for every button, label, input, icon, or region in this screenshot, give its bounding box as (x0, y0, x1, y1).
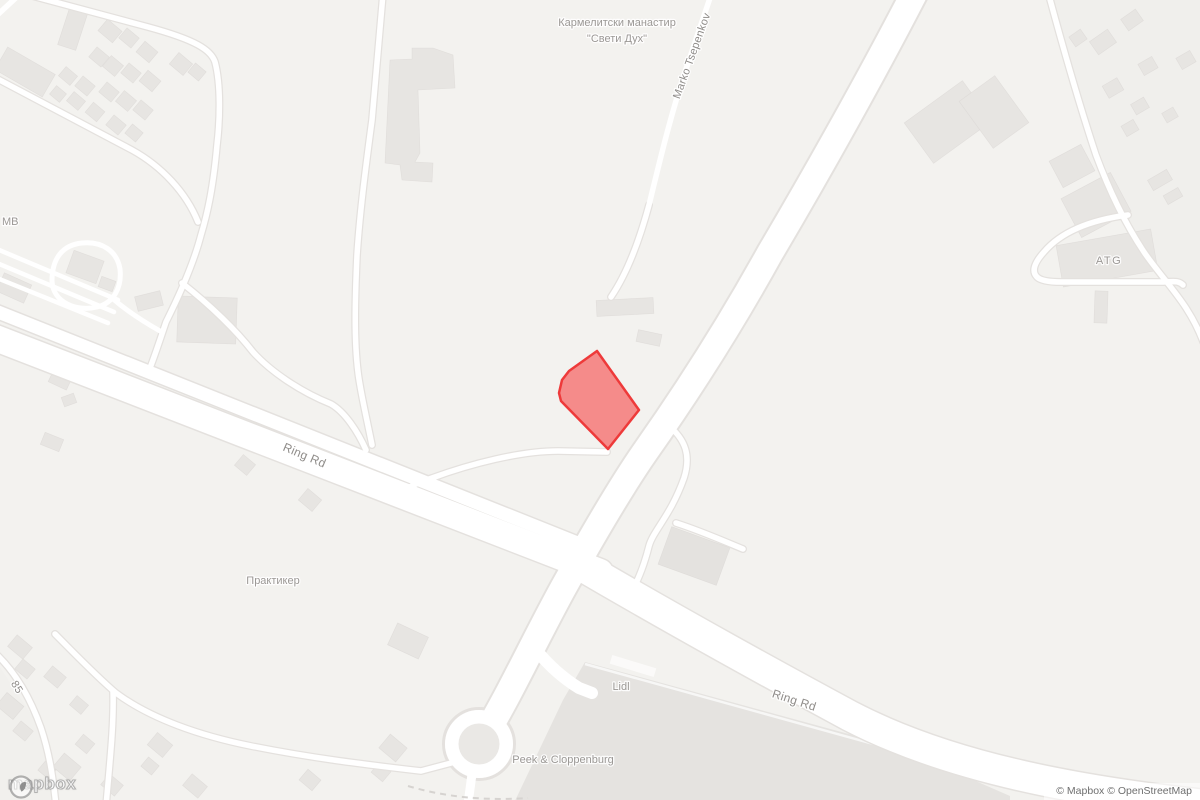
label-lidl: Lidl (612, 681, 629, 693)
label-atg: ATG (1096, 255, 1122, 267)
mapbox-logo[interactable]: mapbox (8, 774, 76, 794)
map-canvas[interactable]: Кармелитски манастир "Свети Дух" Marko T… (0, 0, 1200, 800)
mapbox-logo-icon (8, 774, 34, 800)
label-peek-cloppenburg: Peek & Cloppenburg (512, 754, 614, 766)
label-monastery-line1: Кармелитски манастир (558, 17, 676, 29)
label-mb: МВ (2, 216, 19, 228)
label-praktiker: Практикер (246, 575, 299, 587)
attribution-text: © Mapbox © OpenStreetMap (1056, 785, 1192, 797)
label-monastery-line2: "Свети Дух" (587, 33, 647, 45)
map-attribution[interactable]: © Mapbox © OpenStreetMap (1044, 783, 1200, 800)
roundabout (445, 710, 513, 778)
